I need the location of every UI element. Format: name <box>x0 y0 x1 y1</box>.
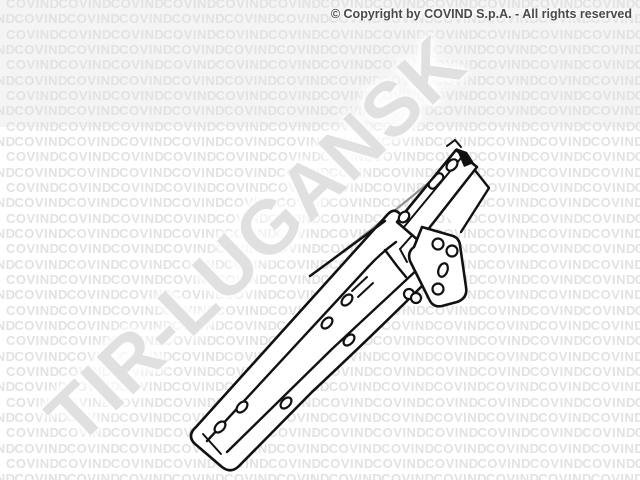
bolt-head <box>411 293 421 303</box>
copyright-notice: © Copyright by COVIND S.p.A. - All right… <box>331 7 632 21</box>
product-image-canvas: COVINDCOVINDCOVINDCOVINDCOVINDCOVINDCOVI… <box>0 0 640 480</box>
part-drawing <box>0 0 640 480</box>
main-arm <box>191 211 434 471</box>
